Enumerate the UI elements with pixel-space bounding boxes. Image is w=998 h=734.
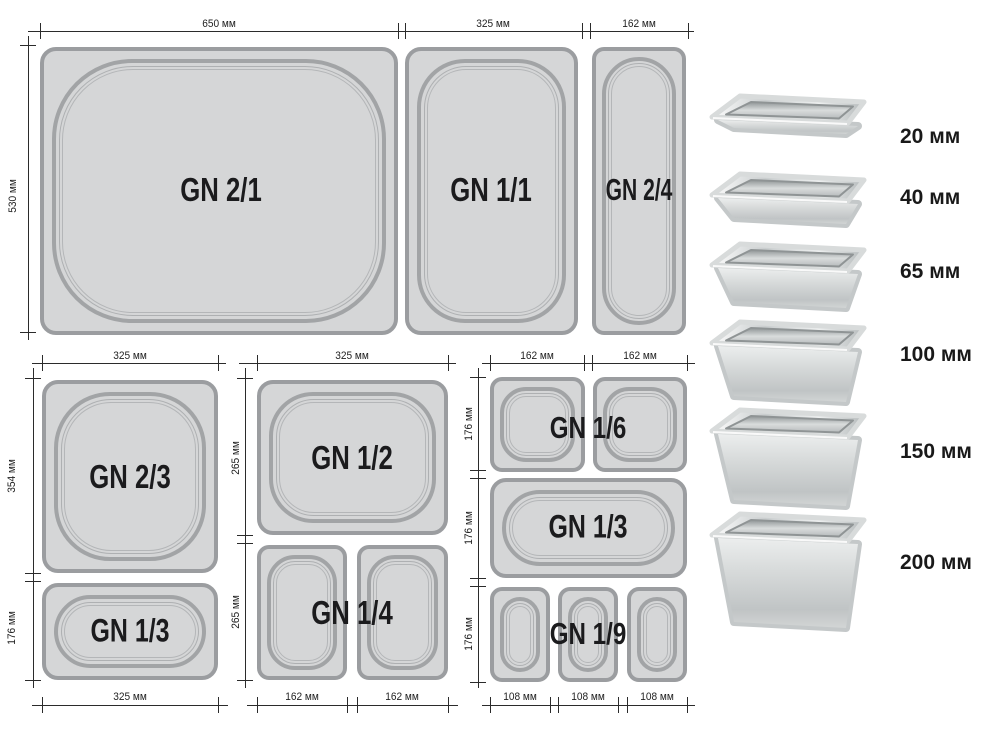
label-gn-2-4: GN 2/4 bbox=[606, 172, 673, 208]
depth-label-150mm: 150 мм bbox=[900, 440, 992, 464]
dim-right-176-a: 176 мм bbox=[463, 407, 475, 441]
dimension-tick bbox=[618, 697, 619, 713]
dimension-line bbox=[33, 368, 34, 688]
dim-right-176-c: 176 мм bbox=[463, 617, 475, 651]
dimension-tick bbox=[257, 697, 258, 713]
pan-inner-ring bbox=[509, 606, 531, 663]
dim-650mm: 650 мм bbox=[202, 18, 236, 30]
dim-right-162-a: 162 мм bbox=[520, 350, 554, 362]
pan-inner-ring bbox=[506, 603, 534, 666]
dimension-tick bbox=[470, 682, 486, 683]
dim-left-325-bottom: 325 мм bbox=[113, 691, 147, 703]
dimension-tick bbox=[25, 680, 41, 681]
dimension-tick bbox=[490, 355, 491, 371]
dimension-line bbox=[478, 368, 479, 688]
dimension-tick bbox=[688, 23, 689, 39]
dimension-tick bbox=[218, 697, 219, 713]
dim-right-108-c: 108 мм bbox=[640, 691, 674, 703]
dimension-tick bbox=[20, 45, 36, 46]
depth-label-20mm: 20 мм bbox=[900, 125, 992, 149]
label-gn-1-2: GN 1/2 bbox=[311, 439, 393, 477]
label-gn-2-1: GN 2/1 bbox=[180, 171, 262, 209]
photo-pan-100mm bbox=[706, 316, 871, 415]
depth-label-40mm: 40 мм bbox=[900, 186, 992, 210]
dim-right-162-b: 162 мм bbox=[623, 350, 657, 362]
dim-left-354: 354 мм bbox=[6, 459, 18, 493]
dimension-line bbox=[245, 368, 246, 688]
pan-inner-ring bbox=[643, 603, 671, 666]
dimension-tick bbox=[448, 697, 449, 713]
dimension-tick bbox=[558, 697, 559, 713]
dimension-tick bbox=[470, 470, 486, 471]
label-gn-2-3: GN 2/3 bbox=[89, 458, 171, 496]
dim-325mm-top: 325 мм bbox=[476, 18, 510, 30]
depth-label-65mm: 65 мм bbox=[900, 260, 992, 284]
dimension-line bbox=[482, 705, 695, 706]
dimension-tick bbox=[218, 355, 219, 371]
photo-pan-150mm bbox=[706, 404, 871, 519]
dimension-tick bbox=[582, 23, 583, 39]
dimension-tick bbox=[257, 355, 258, 371]
dimension-tick bbox=[687, 697, 688, 713]
dimension-tick bbox=[42, 697, 43, 713]
dimension-tick bbox=[25, 581, 41, 582]
label-gn-1-6: GN 1/6 bbox=[550, 410, 627, 446]
dimension-tick bbox=[405, 23, 406, 39]
label-gn-1-4: GN 1/4 bbox=[311, 594, 393, 632]
dimension-tick bbox=[347, 697, 348, 713]
dimension-tick bbox=[40, 23, 41, 39]
dimension-tick bbox=[590, 23, 591, 39]
label-gn-1-3-left: GN 1/3 bbox=[90, 613, 169, 650]
dimension-tick bbox=[237, 378, 253, 379]
label-gn-1-3-right: GN 1/3 bbox=[548, 509, 627, 546]
dimension-tick bbox=[592, 355, 593, 371]
photo-pan-40mm bbox=[706, 168, 871, 237]
dim-right-108-b: 108 мм bbox=[571, 691, 605, 703]
pan-gn-1-9-a bbox=[490, 587, 550, 682]
dimension-tick bbox=[42, 355, 43, 371]
pan-inner-ring bbox=[646, 606, 668, 663]
dim-mid-325-top: 325 мм bbox=[335, 350, 369, 362]
pan-inner-ring bbox=[637, 597, 677, 672]
dimension-tick bbox=[687, 355, 688, 371]
dim-mid-265-a: 265 мм bbox=[230, 441, 242, 475]
label-gn-1-9: GN 1/9 bbox=[550, 616, 627, 652]
dimension-tick bbox=[627, 697, 628, 713]
dimension-tick bbox=[584, 355, 585, 371]
dimension-tick bbox=[470, 478, 486, 479]
dimension-tick bbox=[25, 378, 41, 379]
dim-right-176-b: 176 мм bbox=[463, 511, 475, 545]
pan-inner-ring bbox=[500, 597, 540, 672]
depth-label-200mm: 200 мм bbox=[900, 551, 992, 575]
dim-530mm: 530 мм bbox=[7, 179, 19, 213]
dimension-tick bbox=[470, 586, 486, 587]
dim-mid-162-b: 162 мм bbox=[385, 691, 419, 703]
dimension-tick bbox=[20, 332, 36, 333]
dimension-tick bbox=[448, 355, 449, 371]
dimension-line bbox=[482, 363, 695, 364]
photo-pan-20mm bbox=[706, 90, 871, 147]
dim-left-176: 176 мм bbox=[6, 611, 18, 645]
dimension-line bbox=[28, 36, 29, 340]
dimension-tick bbox=[237, 680, 253, 681]
dimension-tick bbox=[237, 543, 253, 544]
dimension-line bbox=[32, 705, 228, 706]
dimension-tick bbox=[470, 377, 486, 378]
dim-162mm-top: 162 мм bbox=[622, 18, 656, 30]
dimension-line bbox=[32, 363, 226, 364]
dimension-tick bbox=[357, 697, 358, 713]
dimension-tick bbox=[550, 697, 551, 713]
label-gn-1-1: GN 1/1 bbox=[450, 171, 532, 209]
dimension-line bbox=[239, 363, 456, 364]
gn-sizes-infographic: GN 2/1 GN 1/1 GN 2/4 GN 2/3 GN 1/3 GN 1/… bbox=[0, 0, 998, 734]
dimension-tick bbox=[25, 573, 41, 574]
dimension-line bbox=[28, 31, 694, 32]
depth-label-100mm: 100 мм bbox=[900, 343, 992, 367]
dim-left-325-top: 325 мм bbox=[113, 350, 147, 362]
dim-right-108-a: 108 мм bbox=[503, 691, 537, 703]
dim-mid-265-b: 265 мм bbox=[230, 595, 242, 629]
dimension-tick bbox=[490, 697, 491, 713]
photo-pan-65mm bbox=[706, 238, 871, 321]
dim-mid-162-a: 162 мм bbox=[285, 691, 319, 703]
dimension-tick bbox=[237, 535, 253, 536]
dimension-line bbox=[247, 705, 458, 706]
pan-gn-1-9-c bbox=[627, 587, 687, 682]
photo-pan-200mm bbox=[706, 508, 871, 641]
dimension-tick bbox=[470, 578, 486, 579]
dimension-tick bbox=[398, 23, 399, 39]
